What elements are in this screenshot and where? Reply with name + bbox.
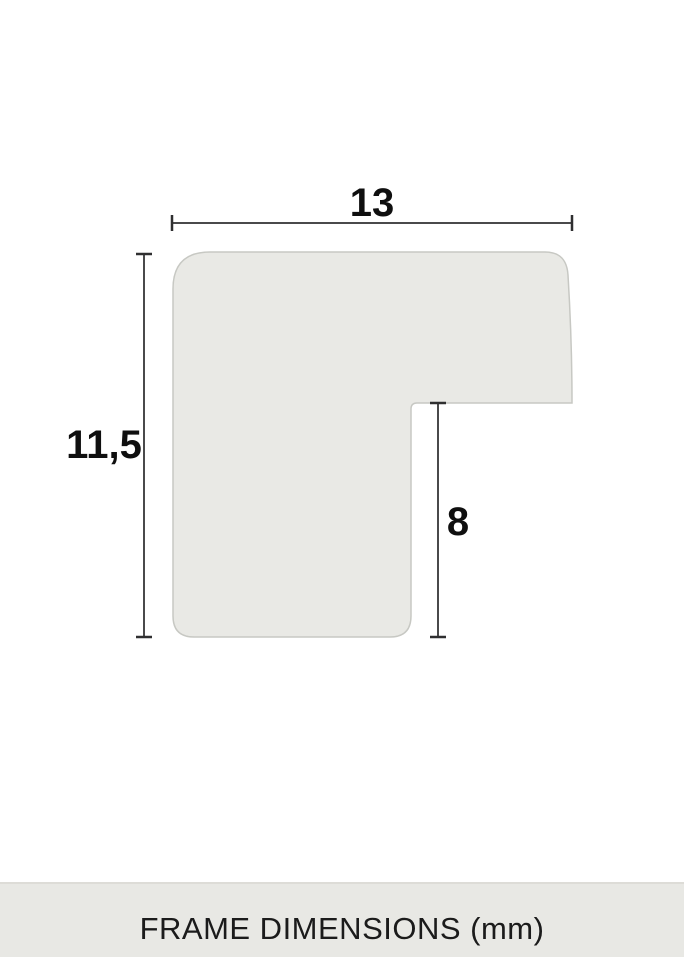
frame-dimensions-diagram: 13 11,5 8 (0, 0, 684, 882)
height-dimension: 11,5 (66, 254, 152, 637)
footer-title: FRAME DIMENSIONS (mm) (140, 911, 545, 947)
footer-bar: FRAME DIMENSIONS (mm) (0, 882, 684, 957)
height-dimension-label: 11,5 (66, 423, 142, 467)
rabbet-dimension-label: 8 (447, 500, 469, 544)
page: 13 11,5 8 FRAME DIMENSIONS (mm) (0, 0, 684, 957)
width-dimension: 13 (172, 181, 572, 231)
frame-profile-diagram-svg: 13 11,5 8 (0, 0, 684, 882)
width-dimension-label: 13 (350, 181, 395, 225)
rabbet-depth-dimension: 8 (430, 403, 469, 637)
frame-profile-shape (173, 252, 572, 637)
